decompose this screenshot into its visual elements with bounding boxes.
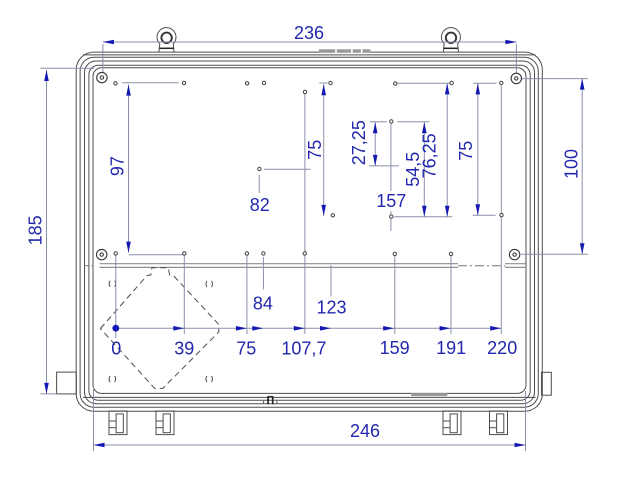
svg-text:107,7: 107,7 xyxy=(281,339,326,359)
svg-text:97: 97 xyxy=(107,156,127,176)
svg-text:246: 246 xyxy=(350,421,380,441)
svg-text:0: 0 xyxy=(111,339,121,359)
svg-text:185: 185 xyxy=(25,215,45,245)
svg-text:191: 191 xyxy=(436,338,466,358)
svg-text:82: 82 xyxy=(250,195,270,215)
svg-text:75: 75 xyxy=(456,141,476,161)
svg-text:39: 39 xyxy=(174,339,194,359)
svg-text:220: 220 xyxy=(487,338,517,358)
svg-text:157: 157 xyxy=(376,191,406,211)
svg-text:75: 75 xyxy=(236,339,256,359)
svg-text:123: 123 xyxy=(316,298,346,318)
svg-text:76,25: 76,25 xyxy=(420,133,440,178)
svg-text:84: 84 xyxy=(253,294,273,314)
svg-text:75: 75 xyxy=(305,140,325,160)
svg-text:159: 159 xyxy=(380,338,410,358)
svg-text:236: 236 xyxy=(294,23,324,43)
svg-text:27,25: 27,25 xyxy=(349,120,369,165)
svg-text:100: 100 xyxy=(561,149,581,179)
